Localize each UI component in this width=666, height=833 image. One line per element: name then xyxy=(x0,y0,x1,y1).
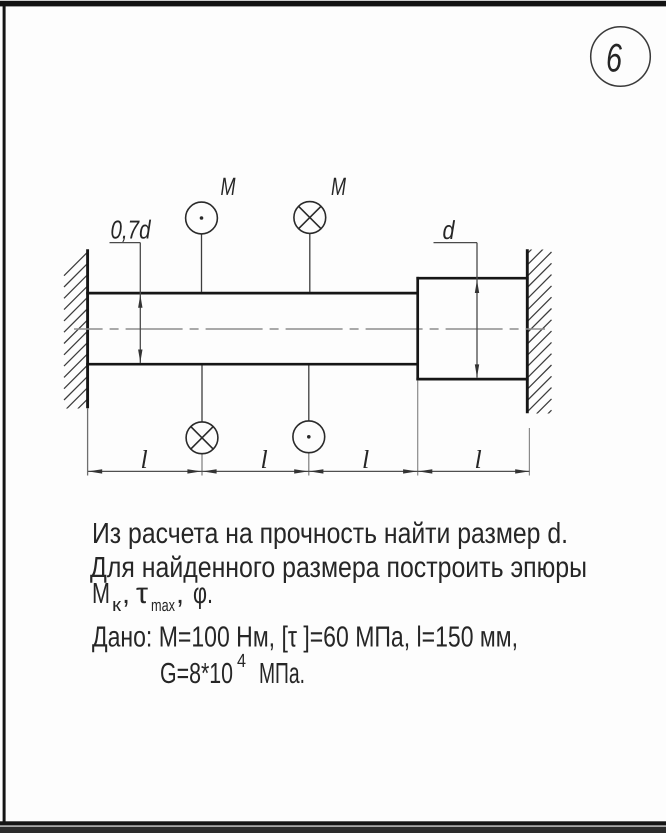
svg-text:l: l xyxy=(475,445,482,474)
svg-text:6: 6 xyxy=(606,37,623,81)
svg-text:Из расчета на прочность найти: Из расчета на прочность найти размер d. xyxy=(92,518,568,550)
svg-text:G=8*10: G=8*10 xyxy=(160,658,233,690)
svg-text:M: M xyxy=(331,173,346,201)
svg-text:l: l xyxy=(141,445,148,474)
svg-text:Дано: М=100 Нм, [τ ]=60 МПа, l: Дано: М=100 Нм, [τ ]=60 МПа, l=150 мм, xyxy=(92,622,518,654)
svg-text:0,7d: 0,7d xyxy=(111,215,152,245)
svg-text:4: 4 xyxy=(237,651,246,672)
svg-text:,: , xyxy=(176,578,184,610)
svg-text:max: max xyxy=(151,596,175,615)
svg-text:d: d xyxy=(443,215,456,245)
svg-text:τ: τ xyxy=(136,578,149,610)
svg-text:к: к xyxy=(112,595,122,616)
svg-text:Для найденного размера построи: Для найденного размера построить эпюры xyxy=(90,552,587,584)
svg-text:,: , xyxy=(122,578,130,610)
svg-text:l: l xyxy=(362,445,369,474)
svg-text:M: M xyxy=(221,173,236,201)
svg-text:МПа.: МПа. xyxy=(259,658,305,690)
svg-text:М: М xyxy=(92,578,110,610)
svg-text:l: l xyxy=(261,445,268,474)
svg-text:φ.: φ. xyxy=(193,578,213,610)
